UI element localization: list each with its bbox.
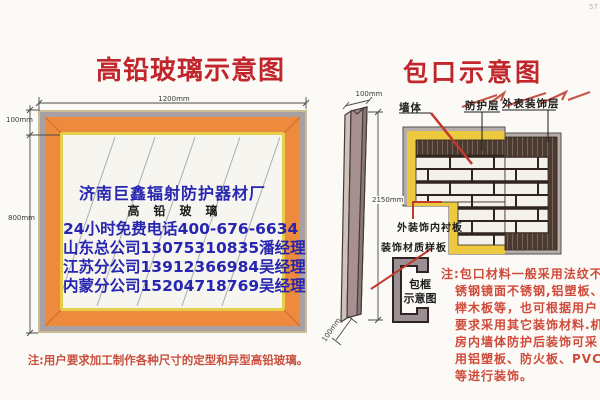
right-note-text: 注:包口材料一般采用法纹不锈钢镜面不锈钢,铝塑板、榉木板等，也可根据用户要求采用… <box>441 266 600 385</box>
outer-finish-label: 外表装饰层 <box>502 96 560 111</box>
dimension-frame-label: 100mm <box>6 116 33 124</box>
bar-width-top-label: 100mm <box>351 90 387 98</box>
wall-label: 墙体 <box>399 100 422 115</box>
left-title: 高铅玻璃示意图 <box>78 50 303 87</box>
company-name-text: 济南巨鑫辐射防护器材厂 <box>63 180 282 204</box>
protective-band-left <box>416 140 505 155</box>
schematic-page: 高铅玻璃示意图 包口示意图 1200mm 100mm 800mm 济南巨鑫辐射防… <box>0 0 600 400</box>
frame-profile-label-line2: 示意图 <box>404 292 437 305</box>
dimension-width-label: 1200mm <box>148 95 200 103</box>
right-title: 包口示意图 <box>383 53 563 89</box>
left-note-text: 注:用户要求加工制作各种尺寸的定型和异型高铅玻璃。 <box>22 352 314 368</box>
frame-profile-label-line1: 包框 <box>409 278 431 291</box>
dimension-height-label: 800mm <box>8 214 35 222</box>
inner-lining-label: 外装饰内衬板 <box>397 219 463 234</box>
page-corner-mark: 57 <box>589 3 598 11</box>
protective-layer-label: 防护层 <box>465 98 500 113</box>
material-sample-label: 装饰材质样板 <box>381 239 447 254</box>
frame-profile-label: 包框 示意图 <box>399 278 441 306</box>
jamb-bar-diagram <box>341 107 367 322</box>
neimeng-branch-text: 内蒙分公司15204718769吴经理 <box>63 274 282 296</box>
bar-height-label: 2150mm <box>371 196 404 204</box>
